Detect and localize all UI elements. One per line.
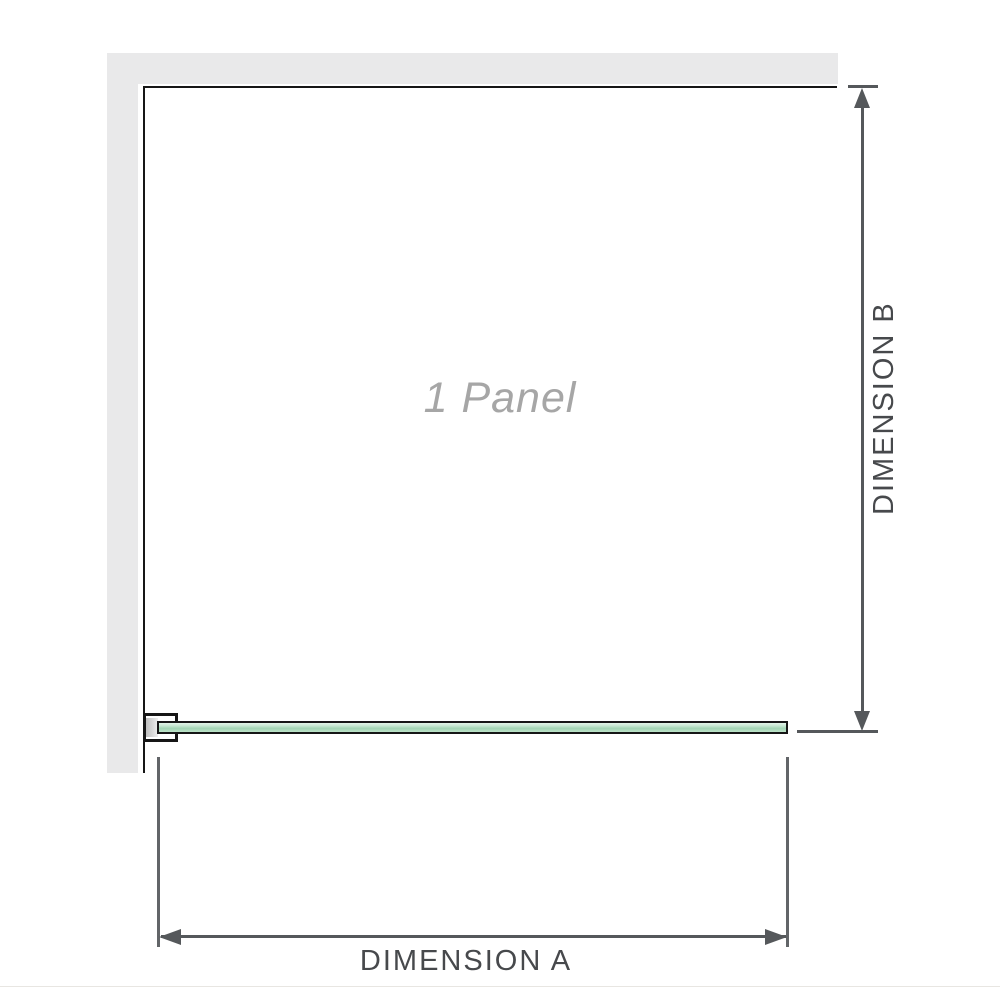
dimension-a-arrow-left-icon bbox=[159, 929, 181, 945]
panel-frame-top-edge bbox=[143, 86, 837, 88]
dimension-a-line bbox=[161, 935, 786, 938]
page-bottom-rule bbox=[0, 986, 1000, 987]
dimension-b-arrow-up-icon bbox=[854, 88, 870, 108]
dimension-b-label: DIMENSION B bbox=[869, 315, 899, 515]
dimension-a-extension-left bbox=[157, 757, 160, 947]
wall-left-strip bbox=[107, 53, 138, 773]
dimension-a-arrow-right-icon bbox=[765, 929, 787, 945]
wall-top-strip bbox=[107, 53, 838, 84]
glass-panel bbox=[157, 721, 788, 734]
panel-count-label: 1 Panel bbox=[400, 370, 600, 426]
dimension-b-line bbox=[861, 93, 864, 719]
dimension-a-label: DIMENSION A bbox=[166, 945, 766, 978]
dimension-b-arrow-down-icon bbox=[854, 711, 870, 731]
dimension-a-extension-right bbox=[786, 757, 789, 947]
panel-frame-left-edge bbox=[143, 86, 145, 773]
